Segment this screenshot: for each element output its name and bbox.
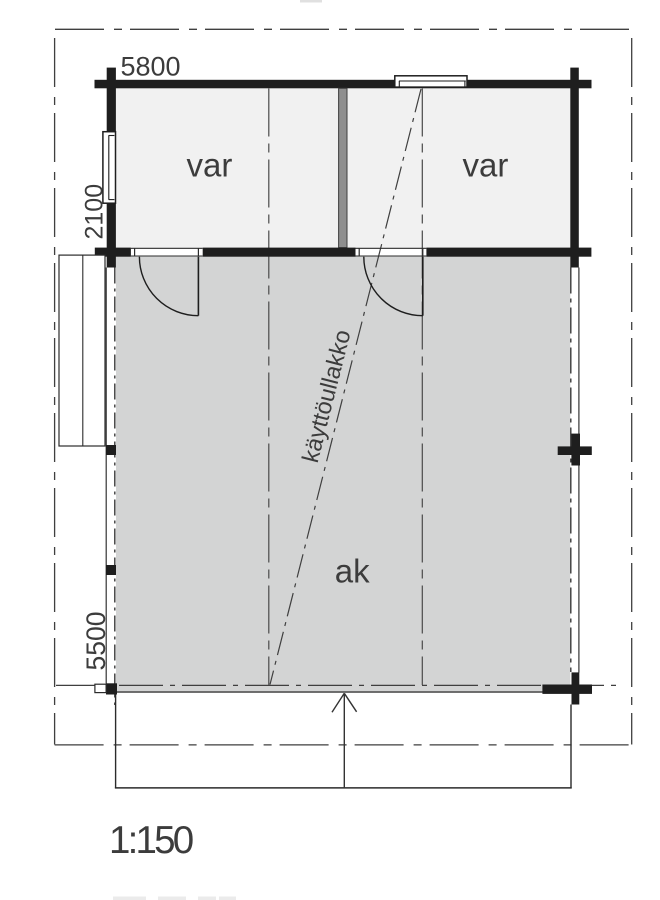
svg-text:5800: 5800 [121,52,181,82]
svg-text:var: var [463,146,509,183]
svg-text:2100: 2100 [81,184,109,240]
svg-text:ak: ak [335,552,370,589]
svg-text:var: var [187,146,233,183]
svg-text:5500: 5500 [81,612,111,671]
svg-text:1:150: 1:150 [109,819,193,862]
